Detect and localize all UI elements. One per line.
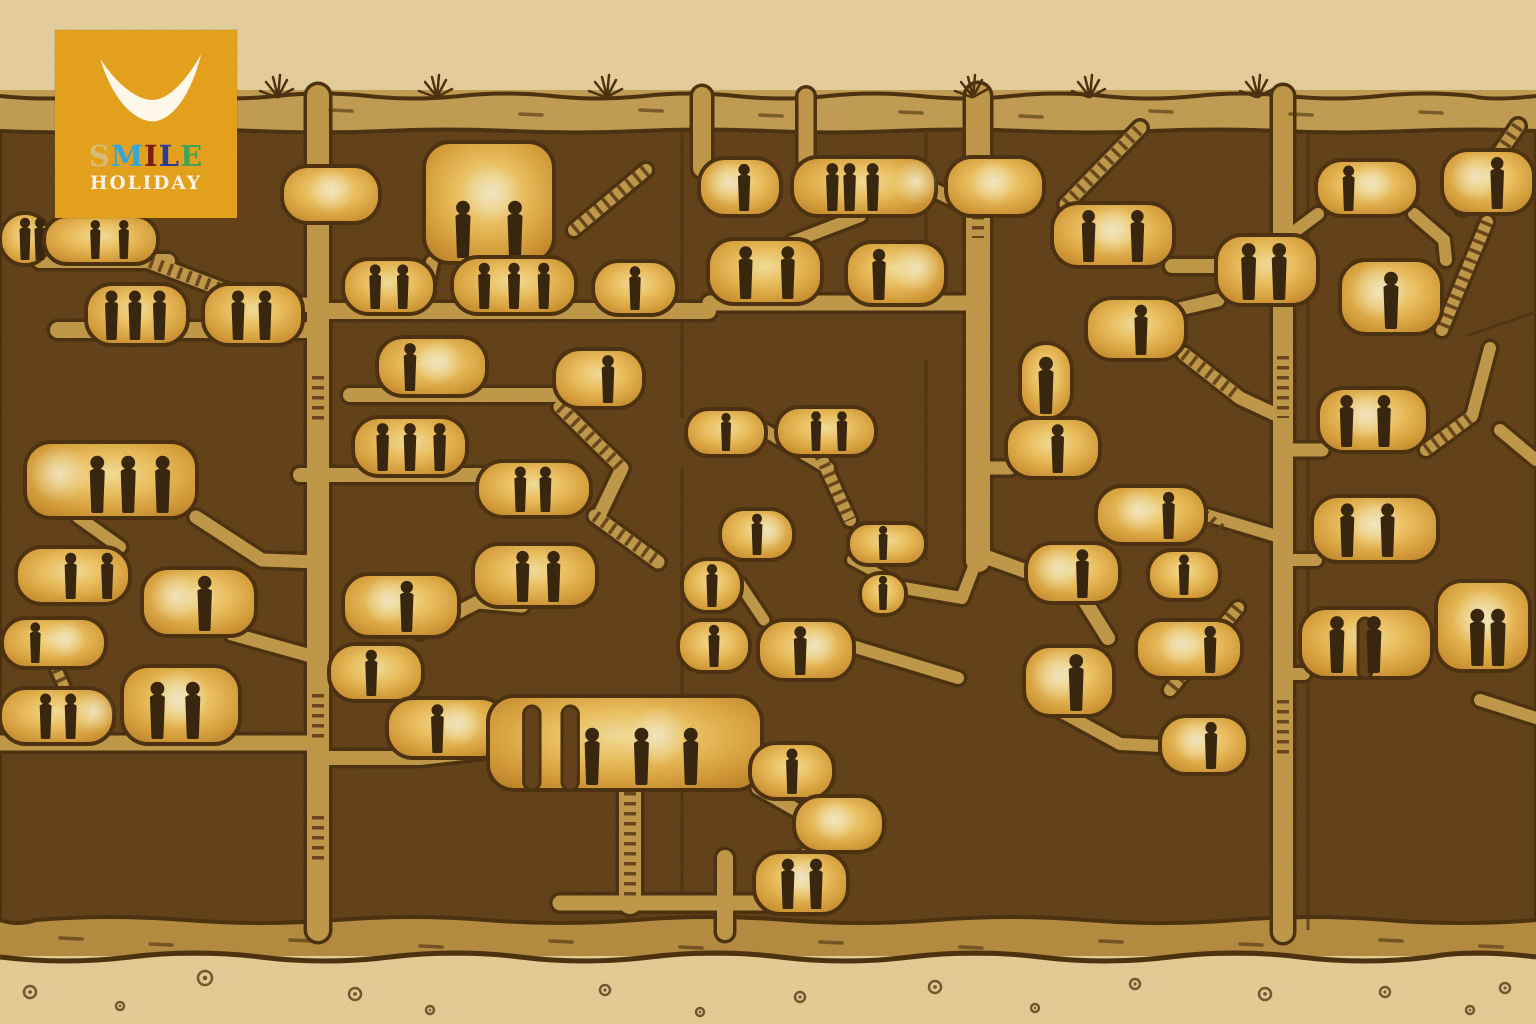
brand-letter: L [159,142,180,171]
hammock-swoosh-shape [100,54,201,121]
brand-letter: S [89,142,111,171]
brand-name: SMILE [89,142,203,171]
underground-city-illustration: SMILE HOLIDAY [0,0,1536,1024]
brand-tagline: HOLIDAY [90,175,202,194]
brand-letter: E [180,142,203,171]
brand-letter: I [144,142,159,171]
brand-logo: SMILE HOLIDAY [55,30,237,218]
hammock-swoosh-icon [83,44,209,140]
brand-letter: M [111,142,144,171]
